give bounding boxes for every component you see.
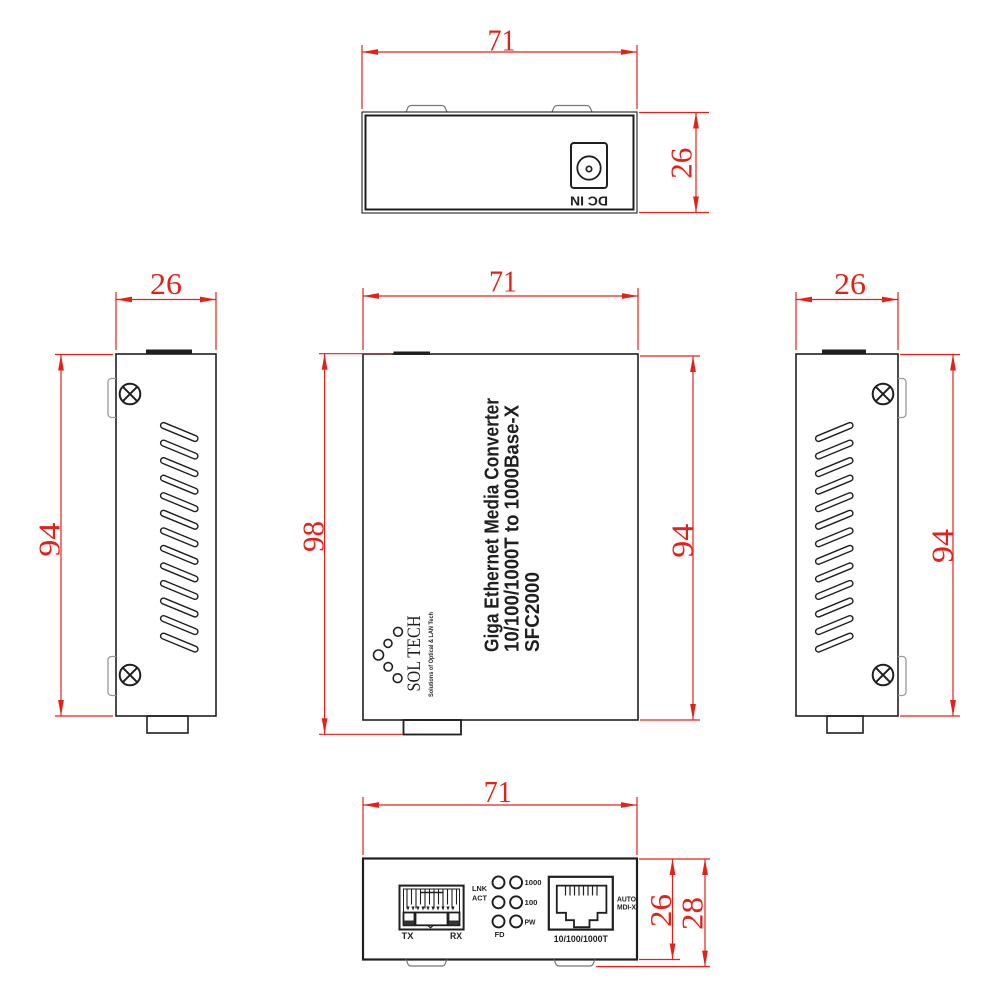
svg-text:26: 26 — [643, 894, 678, 927]
svg-text:PW: PW — [525, 917, 537, 926]
svg-text:AUTO: AUTO — [617, 897, 637, 904]
svg-text:71: 71 — [484, 774, 512, 809]
svg-text:SFC2000: SFC2000 — [522, 572, 544, 652]
svg-text:SOL TECH: SOL TECH — [404, 615, 425, 691]
svg-text:10/100/1000T: 10/100/1000T — [554, 934, 608, 944]
svg-text:71: 71 — [489, 264, 517, 299]
svg-text:10/100/1000T to 1000Base-X: 10/100/1000T to 1000Base-X — [502, 404, 524, 652]
svg-text:FD: FD — [495, 930, 506, 939]
svg-text:MDI-X: MDI-X — [617, 905, 636, 912]
svg-text:DC IN: DC IN — [570, 194, 608, 208]
svg-text:TX: TX — [402, 931, 415, 942]
svg-text:100: 100 — [525, 898, 538, 907]
svg-text:ACT: ACT — [472, 894, 487, 903]
svg-text:98: 98 — [296, 521, 331, 552]
svg-text:RX: RX — [450, 931, 463, 942]
svg-text:71: 71 — [488, 23, 516, 58]
svg-text:1000: 1000 — [525, 878, 542, 887]
svg-text:28: 28 — [675, 897, 710, 930]
svg-text:Solutions of Optical & LAN Tec: Solutions of Optical & LAN Tech — [428, 612, 435, 697]
svg-text:Giga Ethernet Media Converter: Giga Ethernet Media Converter — [482, 398, 504, 652]
svg-text:26: 26 — [150, 266, 182, 301]
svg-text:94: 94 — [925, 528, 960, 563]
svg-text:26: 26 — [834, 266, 866, 301]
svg-text:94: 94 — [665, 523, 700, 558]
svg-text:LNK: LNK — [472, 884, 488, 893]
svg-text:26: 26 — [664, 148, 699, 179]
svg-text:94: 94 — [32, 522, 67, 557]
